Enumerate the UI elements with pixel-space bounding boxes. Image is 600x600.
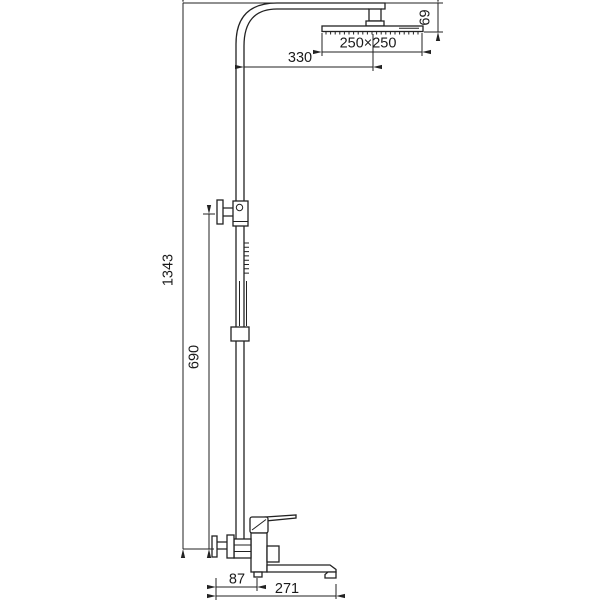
spout-foot (254, 572, 262, 577)
dim-label-690: 690 (187, 345, 203, 369)
head-swivel-flange (366, 21, 384, 26)
slider-block (231, 327, 249, 341)
dimension-head-size: 250×250 (322, 33, 422, 56)
shower-column-technical-drawing: 1343 690 330 250×250 69 (0, 0, 600, 600)
spout (267, 565, 336, 572)
dim-label-87: 87 (229, 572, 245, 588)
head-stem (369, 9, 381, 21)
dim-label-330: 330 (288, 50, 312, 66)
upper-wall-bracket (217, 200, 248, 226)
dim-label-271: 271 (275, 581, 299, 597)
mixer-assembly (212, 515, 336, 578)
bracket-wall-flange (217, 200, 223, 224)
inlet-valve-block (234, 539, 251, 558)
head-nozzles (326, 32, 418, 35)
pipe-ridges (244, 243, 249, 273)
dimension-bracket-height: 690 (187, 214, 216, 549)
diverter-knob (267, 546, 279, 562)
mixer-body (251, 533, 267, 572)
technical-drawing-page: 1343 690 330 250×250 69 (0, 0, 600, 600)
spout-nozzle (325, 572, 336, 578)
dim-label-69: 69 (418, 9, 434, 25)
head-plate (322, 26, 423, 32)
dim-label-250x250: 250×250 (340, 36, 397, 52)
shower-head (322, 9, 423, 35)
riser-pipe-and-arm (236, 3, 385, 539)
lower-wall-flange (212, 536, 217, 557)
inlet-nut (227, 535, 234, 558)
dimension-total-height: 1343 (161, 3, 278, 549)
dim-label-1343: 1343 (161, 254, 177, 286)
